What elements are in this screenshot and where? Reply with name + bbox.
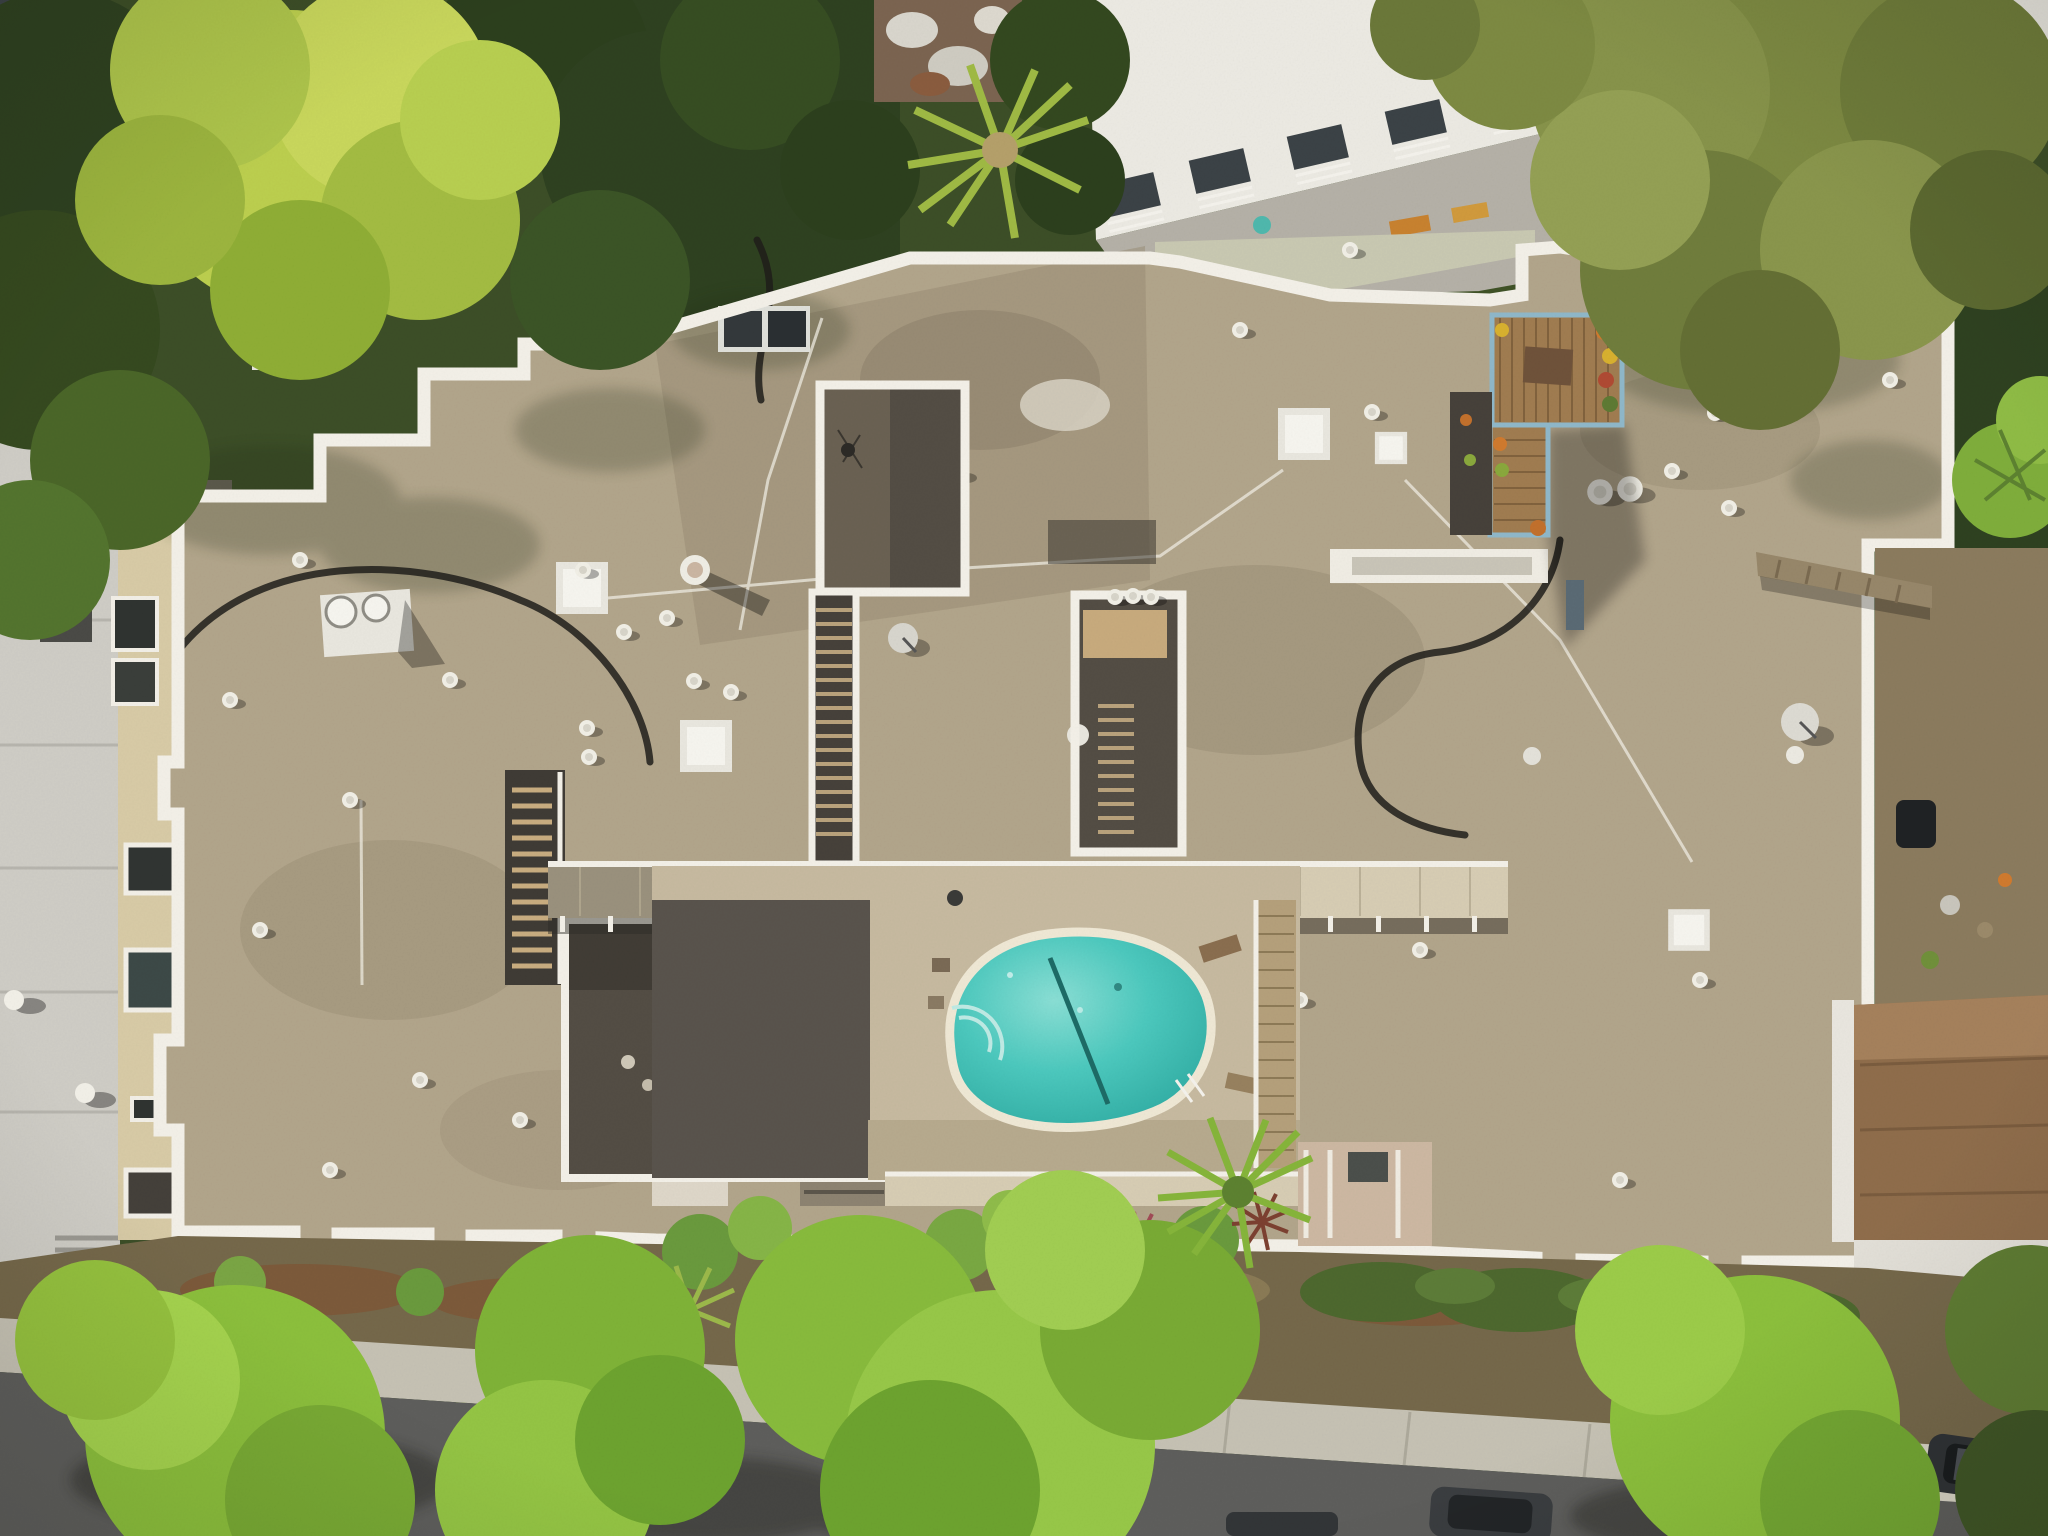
aerial-photo-canvas: [0, 0, 2048, 1536]
aerial-photo: [0, 0, 2048, 1536]
vignette: [0, 0, 2048, 1536]
